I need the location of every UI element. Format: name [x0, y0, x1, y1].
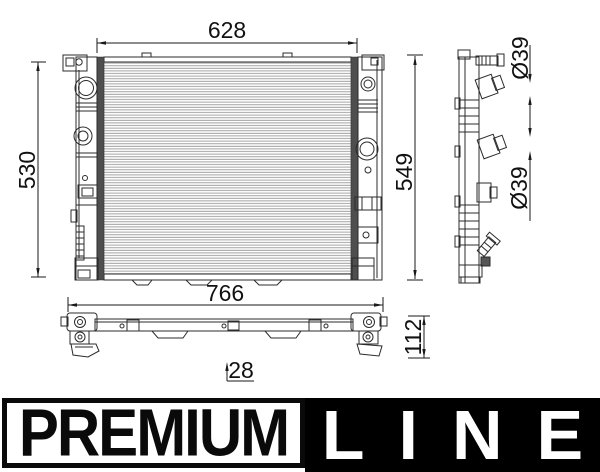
- bottom-right-bracket: [351, 313, 387, 356]
- dim-label-depth: 28: [228, 357, 254, 383]
- dimension-dia39-top: Ø39: [507, 36, 533, 128]
- left-tank: [63, 55, 98, 280]
- radiator-technical-drawing-page: 628 530 549 Ø39: [0, 0, 600, 472]
- right-port: [356, 138, 378, 160]
- bottom-port-connector: [477, 131, 507, 158]
- dim-label-bottom-width: 766: [206, 280, 244, 306]
- radiator-side-view: [455, 50, 508, 283]
- dim-label-top-port-diameter: Ø39: [507, 36, 533, 79]
- dimension-28: 28: [225, 357, 254, 383]
- dimension-dia39-bottom: Ø39: [506, 128, 532, 221]
- dimension-530: 530: [14, 62, 46, 277]
- dim-label-front-width: 628: [208, 17, 246, 43]
- line-label: LINE: [322, 400, 600, 470]
- bottom-left-bracket: [61, 313, 99, 357]
- premium-line-banner: PREMIUM LINE: [0, 398, 600, 472]
- radiator-bottom-view: [61, 313, 387, 357]
- top-port-connector: [475, 71, 505, 98]
- premium-label: PREMIUM: [19, 399, 288, 466]
- dimension-628: 628: [97, 17, 357, 53]
- core-left-strip: [97, 57, 104, 280]
- dim-label-core-height: 530: [14, 151, 40, 189]
- dim-label-bottom-port-diameter: Ø39: [506, 166, 532, 209]
- dimension-112: 112: [400, 316, 430, 358]
- line-box: LINE: [305, 398, 600, 472]
- radiator-front-view: [63, 53, 384, 285]
- left-port: [74, 127, 92, 145]
- core-top-band: [104, 57, 351, 62]
- dim-label-overall-height: 549: [391, 153, 417, 191]
- core-fins: [104, 62, 351, 274]
- dimension-549: 549: [391, 55, 423, 280]
- core-right-strip: [351, 57, 358, 280]
- dimension-766: 766: [68, 280, 383, 312]
- dim-label-bottom-height: 112: [400, 319, 426, 356]
- technical-drawing: 628 530 549 Ø39: [0, 0, 600, 398]
- premium-box: PREMIUM: [2, 398, 305, 468]
